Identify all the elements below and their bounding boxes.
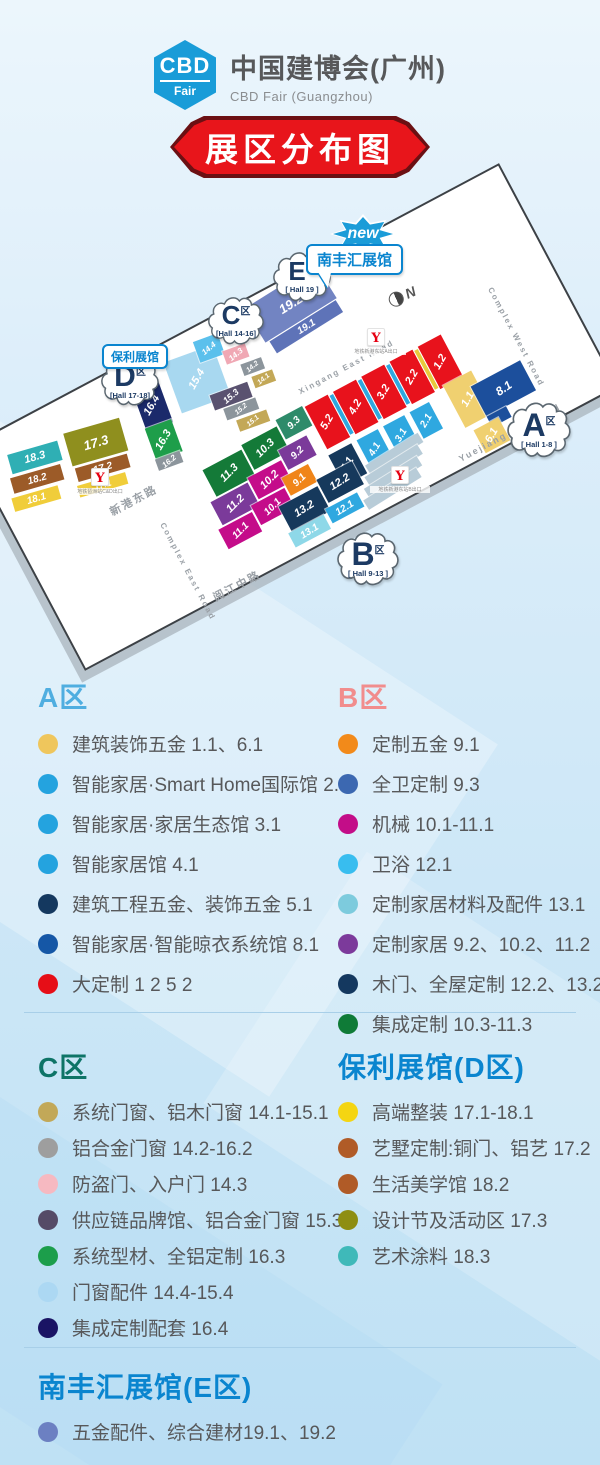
metro-logo-glyph: Y [371,331,380,346]
legend-zone-c: C区系统门窗、铝木门窗 14.1-15.1铝合金门窗 14.2-16.2防盗门、… [38,1046,342,1350]
legend-item: 门窗配件 14.4-15.4 [38,1278,342,1305]
legend-item: 定制家居 9.2、10.2、11.2 [338,930,600,957]
legend-item-text: 集成定制配套 16.4 [72,1314,228,1341]
metro-logo-glyph: Y [395,469,404,484]
legend-item: 高端整装 17.1-18.1 [338,1098,591,1125]
legend-item-text: 艺术涂料 18.3 [372,1242,490,1269]
legend-color-dot [338,1246,358,1266]
legend-item-text: 智能家居·智能晾衣系统馆 8.1 [72,930,319,957]
legend-item: 系统型材、全铝定制 16.3 [38,1242,342,1269]
nanfeng-hall-callout: 南丰汇展馆 [306,244,403,275]
map-block-label: 9.1 [291,471,309,489]
legend-color-dot [38,774,58,794]
road-label: 阅江中路 [210,566,263,605]
legend-item-text: 建筑工程五金、装饰五金 5.1 [72,890,313,917]
legend-color-dot [338,934,358,954]
legend-item-text: 建筑装饰五金 1.1、6.1 [72,730,263,757]
legend-item: 智能家居·Smart Home国际馆 2.1 [38,770,350,797]
legend-title: 保利展馆(D区) [338,1046,591,1086]
legend-item: 智能家居·家居生态馆 3.1 [38,810,350,837]
map-block-label: 15.4 [187,367,208,392]
logo-text-cbd: CBD [160,53,211,82]
legend-item: 五金配件、综合建材19.1、19.2 [38,1418,336,1445]
fair-subtitle: CBD Fair (Guangzhou) [230,89,446,104]
map-block-label: 15.1 [246,414,261,428]
legend-color-dot [38,814,58,834]
zone-hall-range: [ Hall 1-8 ] [521,440,557,449]
legend-item-text: 智能家居·Smart Home国际馆 2.1 [72,770,350,797]
legend-item: 供应链品牌馆、铝合金门窗 15.3 [38,1206,342,1233]
map-block-label: 18.1 [25,491,47,507]
map-block-label: 14.1 [256,372,271,386]
legend-item-text: 机械 10.1-11.1 [372,810,494,837]
legend-title: B区 [338,676,600,716]
legend-item: 铝合金门窗 14.2-16.2 [38,1134,342,1161]
legend-item-text: 智能家居·家居生态馆 3.1 [72,810,281,837]
map-block-label: 11.2 [224,492,247,515]
zone-hall-range: [Hall 17-18] [110,391,150,400]
map-block-label: 12.1 [334,498,356,518]
legend-item-text: 门窗配件 14.4-15.4 [72,1278,234,1305]
legend-item: 系统门窗、铝木门窗 14.1-15.1 [38,1098,342,1125]
legend-item: 艺术涂料 18.3 [338,1242,591,1269]
legend-item: 机械 10.1-11.1 [338,810,600,837]
logo-text-fair: Fair [174,84,196,98]
legend-item: 防盗门、入户门 14.3 [38,1170,342,1197]
zone-qu: 区 [546,416,556,427]
legend-color-dot [38,1318,58,1338]
zone-hall-range: [ Hall 9-13 ] [348,569,388,578]
legend-item-text: 集成定制 10.3-11.3 [372,1010,532,1037]
legend-title: 南丰汇展馆(E区) [38,1366,336,1406]
map-block-label: 5.2 [318,412,336,431]
map-block-label: 18.3 [23,449,47,466]
legend-item-text: 供应链品牌馆、铝合金门窗 15.3 [72,1206,342,1233]
legend-item-text: 定制家居材料及配件 13.1 [372,890,585,917]
legend-zone-a: A区建筑装饰五金 1.1、6.1智能家居·Smart Home国际馆 2.1智能… [38,676,350,1010]
zone-qu: 区 [375,545,385,556]
legend-item-text: 卫浴 12.1 [372,850,452,877]
banner-title: 展区分布图 [205,123,395,171]
legend-item-text: 定制家居 9.2、10.2、11.2 [372,930,590,957]
map-block-label: 13.2 [292,498,317,520]
legend-item: 生活美学馆 18.2 [338,1170,591,1197]
metro-station: Y地铁新港东站A出口 [346,328,406,355]
legend-color-dot [38,1174,58,1194]
legend-item-text: 铝合金门窗 14.2-16.2 [72,1134,253,1161]
metro-icon: Y [391,466,409,484]
section-title-banner: 展区分布图 [170,116,430,178]
legend-zone-b: B区定制五金 9.1全卫定制 9.3机械 10.1-11.1卫浴 12.1定制家… [338,676,600,1050]
map-block-label: 14.2 [245,359,260,373]
legend-title: C区 [38,1046,342,1086]
legend-zone-d: 保利展馆(D区)高端整装 17.1-18.1艺墅定制:铜门、铝艺 17.2生活美… [338,1046,591,1278]
road-label: Complex East Road [158,521,217,622]
legend-item: 木门、全屋定制 12.2、13.2 [338,970,600,997]
map-block-label: 9.2 [289,444,307,462]
legend-item: 定制家居材料及配件 13.1 [338,890,600,917]
legend-color-dot [38,1422,58,1442]
legend-color-dot [38,1282,58,1302]
legend-item-text: 五金配件、综合建材19.1、19.2 [72,1418,336,1445]
legend-item-text: 防盗门、入户门 14.3 [72,1170,247,1197]
map-block-label: 16.3 [153,428,174,453]
zone-cloud-c: C区[Hall 14-16] [207,295,265,347]
legend-color-dot [338,1014,358,1034]
header: CBD Fair 中国建博会(广州) CBD Fair (Guangzhou) [0,40,600,110]
legend-color-dot [338,734,358,754]
map-block-label: 1.2 [431,352,449,371]
legend-item-text: 全卫定制 9.3 [372,770,480,797]
metro-caption: 地铁琶洲站C&D出口 [70,488,130,495]
legend-item: 智能家居馆 4.1 [38,850,350,877]
legend-color-dot [38,734,58,754]
legend-item-text: 系统门窗、铝木门窗 14.1-15.1 [72,1098,329,1125]
legend-color-dot [38,1246,58,1266]
zone-letter: B区 [351,540,384,569]
zone-cloud-text: B区[ Hall 9-13 ] [336,530,400,588]
map-block-label: 11.1 [230,520,251,541]
legend-item: 卫浴 12.1 [338,850,600,877]
legend-item-text: 定制五金 9.1 [372,730,480,757]
map-block-label: 10.3 [254,436,278,460]
legend-color-dot [38,1138,58,1158]
legend-color-dot [338,894,358,914]
legend-item-text: 艺墅定制:铜门、铝艺 17.2 [372,1134,591,1161]
poly-hall-callout: 保利展馆 [102,344,168,369]
header-text: 中国建博会(广州) CBD Fair (Guangzhou) [230,47,446,104]
legend-color-dot [38,1210,58,1230]
map-block: 14.1 [251,369,276,388]
metro-caption: 地铁新港东站A出口 [346,348,406,355]
metro-station: Y地铁琶洲站C&D出口 [70,468,130,495]
map-block-label: 4.2 [347,397,365,416]
metro-icon: Y [367,328,385,346]
legend-color-dot [38,934,58,954]
metro-icon: Y [91,468,109,486]
legend-color-dot [38,854,58,874]
zone-hall-range: [Hall 14-16] [216,329,256,338]
legend-color-dot [38,894,58,914]
legend-color-dot [338,1210,358,1230]
new-badge-label: new [347,225,378,243]
legend-item: 集成定制 10.3-11.3 [338,1010,600,1037]
legend-item-text: 大定制 1 2 5 2 [72,970,192,997]
legend-color-dot [338,774,358,794]
map-block-label: 18.2 [26,471,48,487]
exhibition-map-poster: CBD Fair 中国建博会(广州) CBD Fair (Guangzhou) … [0,0,600,1465]
metro-caption: 地铁新港东站B出口 [370,486,430,493]
map-block-label: 10.2 [258,468,282,492]
nanfeng-hall-label: 南丰汇展馆 [317,252,392,269]
metro-logo-glyph: Y [95,471,104,486]
legend-item-text: 设计节及活动区 17.3 [372,1206,547,1233]
zone-letter: A区 [522,411,555,440]
legend-color-dot [338,814,358,834]
map-block-label: 8.1 [492,378,514,399]
fair-title: 中国建博会(广州) [230,47,446,86]
legend-item: 艺墅定制:铜门、铝艺 17.2 [338,1134,591,1161]
legend-color-dot [338,1138,358,1158]
metro-station: Y地铁新港东站B出口 [370,466,430,493]
legend-item: 建筑装饰五金 1.1、6.1 [38,730,350,757]
legend-color-dot [38,1102,58,1122]
banner-inner: 展区分布图 [174,120,426,174]
zone-cloud-text: A区[ Hall 1-8 ] [506,400,572,460]
map-block-label: 17.3 [82,431,110,452]
legend-item: 全卫定制 9.3 [338,770,600,797]
legend-item-text: 生活美学馆 18.2 [372,1170,509,1197]
legend-item: 定制五金 9.1 [338,730,600,757]
zone-qu: 区 [240,307,250,318]
zone-hall-range: [ Hall 19 ] [285,285,318,294]
legend-item-text: 系统型材、全铝定制 16.3 [72,1242,285,1269]
legend-color-dot [338,974,358,994]
zone-letter: C区 [222,304,251,327]
legend-item: 建筑工程五金、装饰五金 5.1 [38,890,350,917]
map-block-label: 12.2 [328,471,353,493]
legend-item: 设计节及活动区 17.3 [338,1206,591,1233]
legend-color-dot [338,1102,358,1122]
map-block-label: 3.2 [375,382,393,401]
poly-hall-label: 保利展馆 [111,350,159,364]
map-block-label: 14.3 [227,346,245,363]
map-block-label: 15.2 [234,402,249,416]
zone-cloud-b: B区[ Hall 9-13 ] [336,530,400,588]
legend-item: 大定制 1 2 5 2 [38,970,350,997]
legend-title: A区 [38,676,350,716]
legend-item: 智能家居·智能晾衣系统馆 8.1 [38,930,350,957]
map-block-label: 2.1 [418,412,434,430]
legend-color-dot [338,854,358,874]
legend-color-dot [38,974,58,994]
map-block-label: 11.3 [217,462,240,485]
cbd-fair-logo: CBD Fair [154,40,216,110]
legend-zone-e: 南丰汇展馆(E区)五金配件、综合建材19.1、19.2 [38,1366,336,1454]
zone-cloud-a: A区[ Hall 1-8 ] [506,400,572,460]
legend-item: 集成定制配套 16.4 [38,1314,342,1341]
legend-color-dot [338,1174,358,1194]
zone-cloud-text: C区[Hall 14-16] [207,295,265,347]
legend-item-text: 智能家居馆 4.1 [72,850,199,877]
legend-item-text: 木门、全屋定制 12.2、13.2 [372,970,600,997]
map-block-label: 9.3 [285,414,303,432]
map-block-label: 2.2 [403,367,421,386]
legend-item-text: 高端整装 17.1-18.1 [372,1098,534,1125]
